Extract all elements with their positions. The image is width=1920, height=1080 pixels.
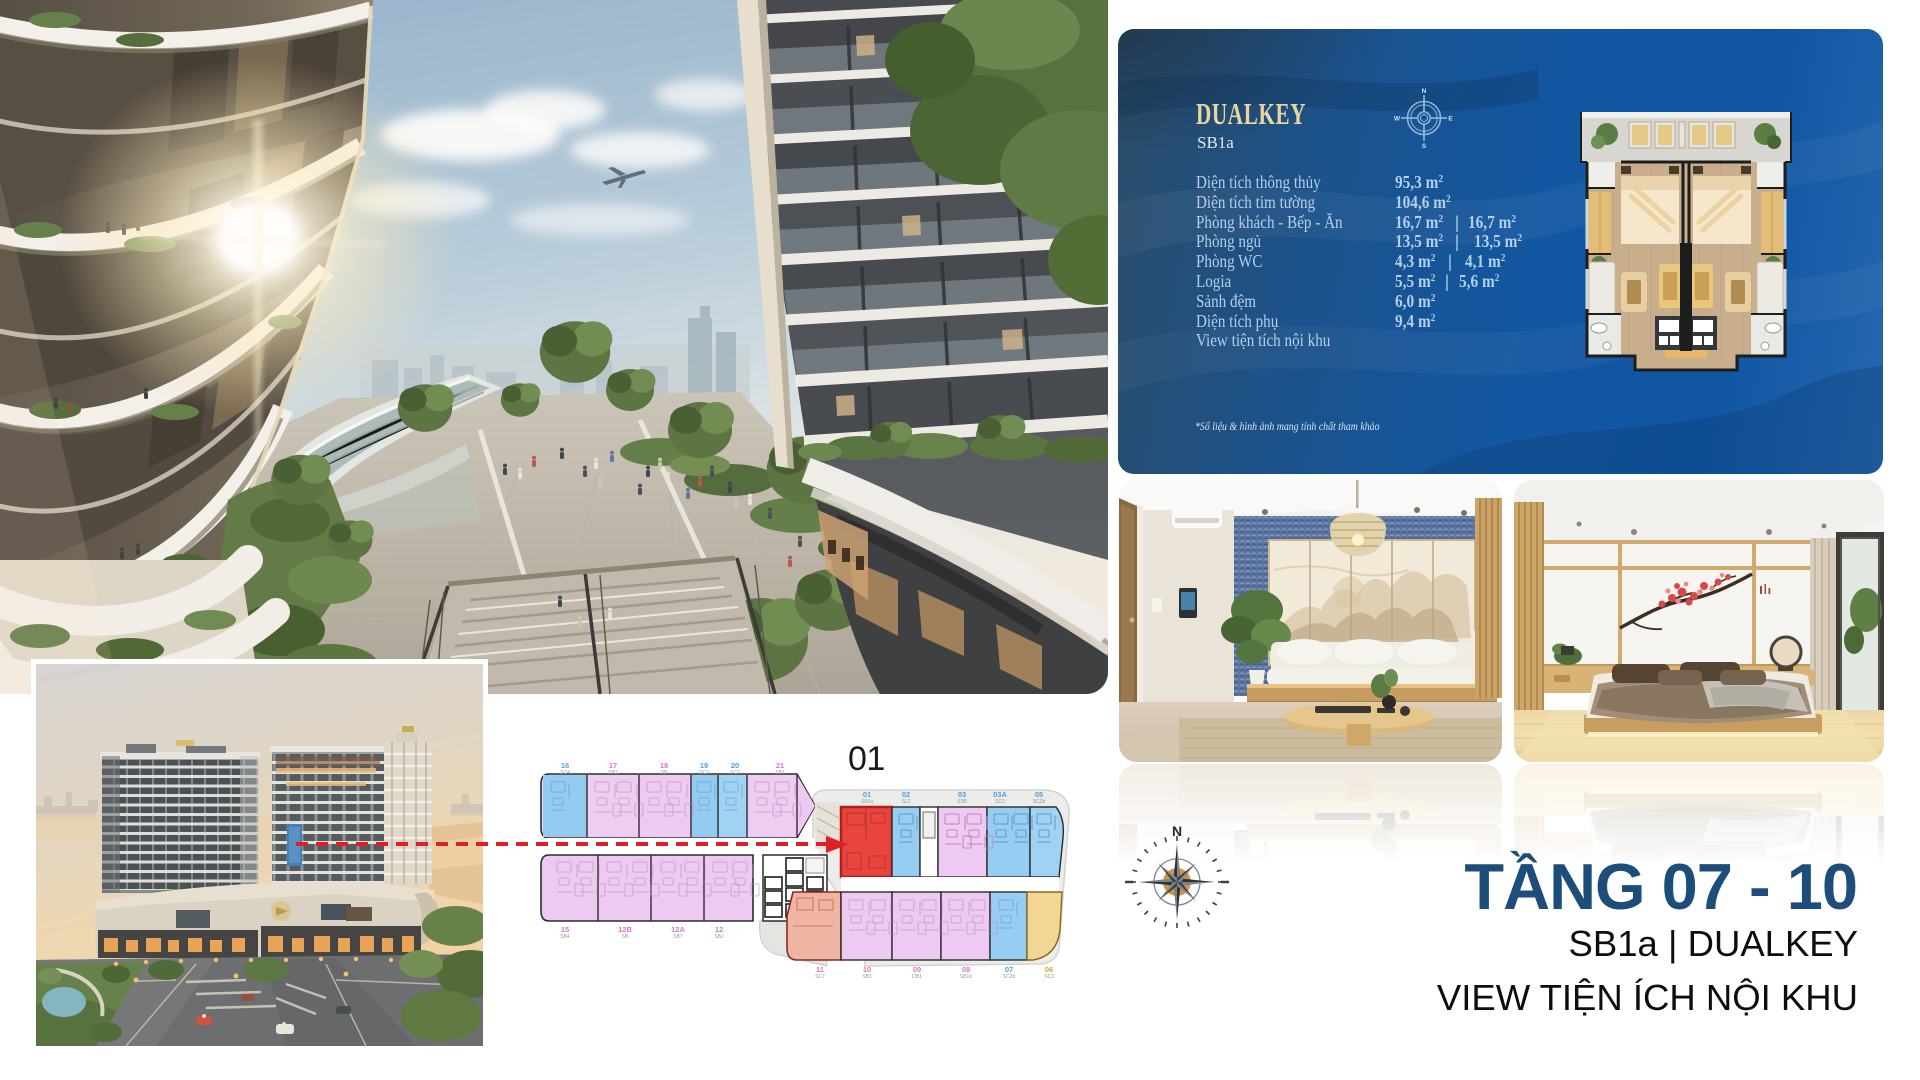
svg-text:N: N [1172, 824, 1182, 839]
svg-text:SB1a: SB1a [861, 799, 873, 805]
svg-text:17: 17 [609, 761, 617, 770]
svg-text:SB1b: SB1b [960, 974, 972, 980]
svg-text:19: 19 [700, 761, 708, 770]
svg-text:SB: SB [622, 934, 629, 940]
svg-text:02: 02 [902, 790, 910, 799]
svg-text:S: S [1422, 143, 1427, 150]
svg-text:SB4: SB4 [560, 934, 570, 940]
svg-text:03A: 03A [993, 790, 1007, 799]
svg-text:SB: SB [661, 770, 668, 776]
svg-text:15: 15 [561, 925, 569, 934]
svg-text:SB1: SB1 [862, 974, 872, 980]
svg-text:06: 06 [1045, 965, 1053, 974]
svg-text:SL2: SL2 [902, 799, 911, 805]
svg-text:SC2b: SC2b [1033, 799, 1046, 805]
svg-text:SB1: SB1 [608, 770, 618, 776]
svg-text:W: W [1394, 116, 1401, 123]
svg-text:16: 16 [561, 761, 569, 770]
svg-text:S3B: S3B [957, 799, 967, 805]
svg-text:SBJ: SBJ [714, 934, 724, 940]
svg-text:08: 08 [962, 965, 970, 974]
svg-text:SC2b: SC2b [1003, 974, 1016, 980]
svg-text:12B: 12B [618, 925, 632, 934]
svg-text:07: 07 [1005, 965, 1013, 974]
svg-text:12A: 12A [671, 925, 685, 934]
svg-text:DB1: DB1 [912, 974, 922, 980]
svg-text:09: 09 [913, 965, 921, 974]
svg-text:N: N [1422, 88, 1427, 95]
svg-text:21: 21 [776, 761, 784, 770]
svg-text:10: 10 [863, 965, 871, 974]
svg-text:SC4: SC4 [560, 770, 570, 776]
svg-text:18: 18 [660, 761, 668, 770]
svg-text:E: E [1448, 116, 1453, 123]
svg-text:SC3: SC3 [1044, 974, 1054, 980]
svg-text:11: 11 [816, 965, 824, 974]
svg-text:01: 01 [863, 790, 871, 799]
svg-text:05: 05 [1035, 790, 1043, 799]
svg-text:20: 20 [731, 761, 739, 770]
svg-text:SC7: SC7 [815, 974, 825, 980]
svg-text:03: 03 [958, 790, 966, 799]
svg-text:SC2: SC2 [995, 799, 1005, 805]
svg-text:12: 12 [715, 925, 723, 934]
svg-text:SB7: SB7 [775, 770, 785, 776]
svg-text:SC7: SC7 [730, 770, 740, 776]
svg-text:SC3: SC3 [699, 770, 709, 776]
svg-text:SB7: SB7 [673, 934, 683, 940]
